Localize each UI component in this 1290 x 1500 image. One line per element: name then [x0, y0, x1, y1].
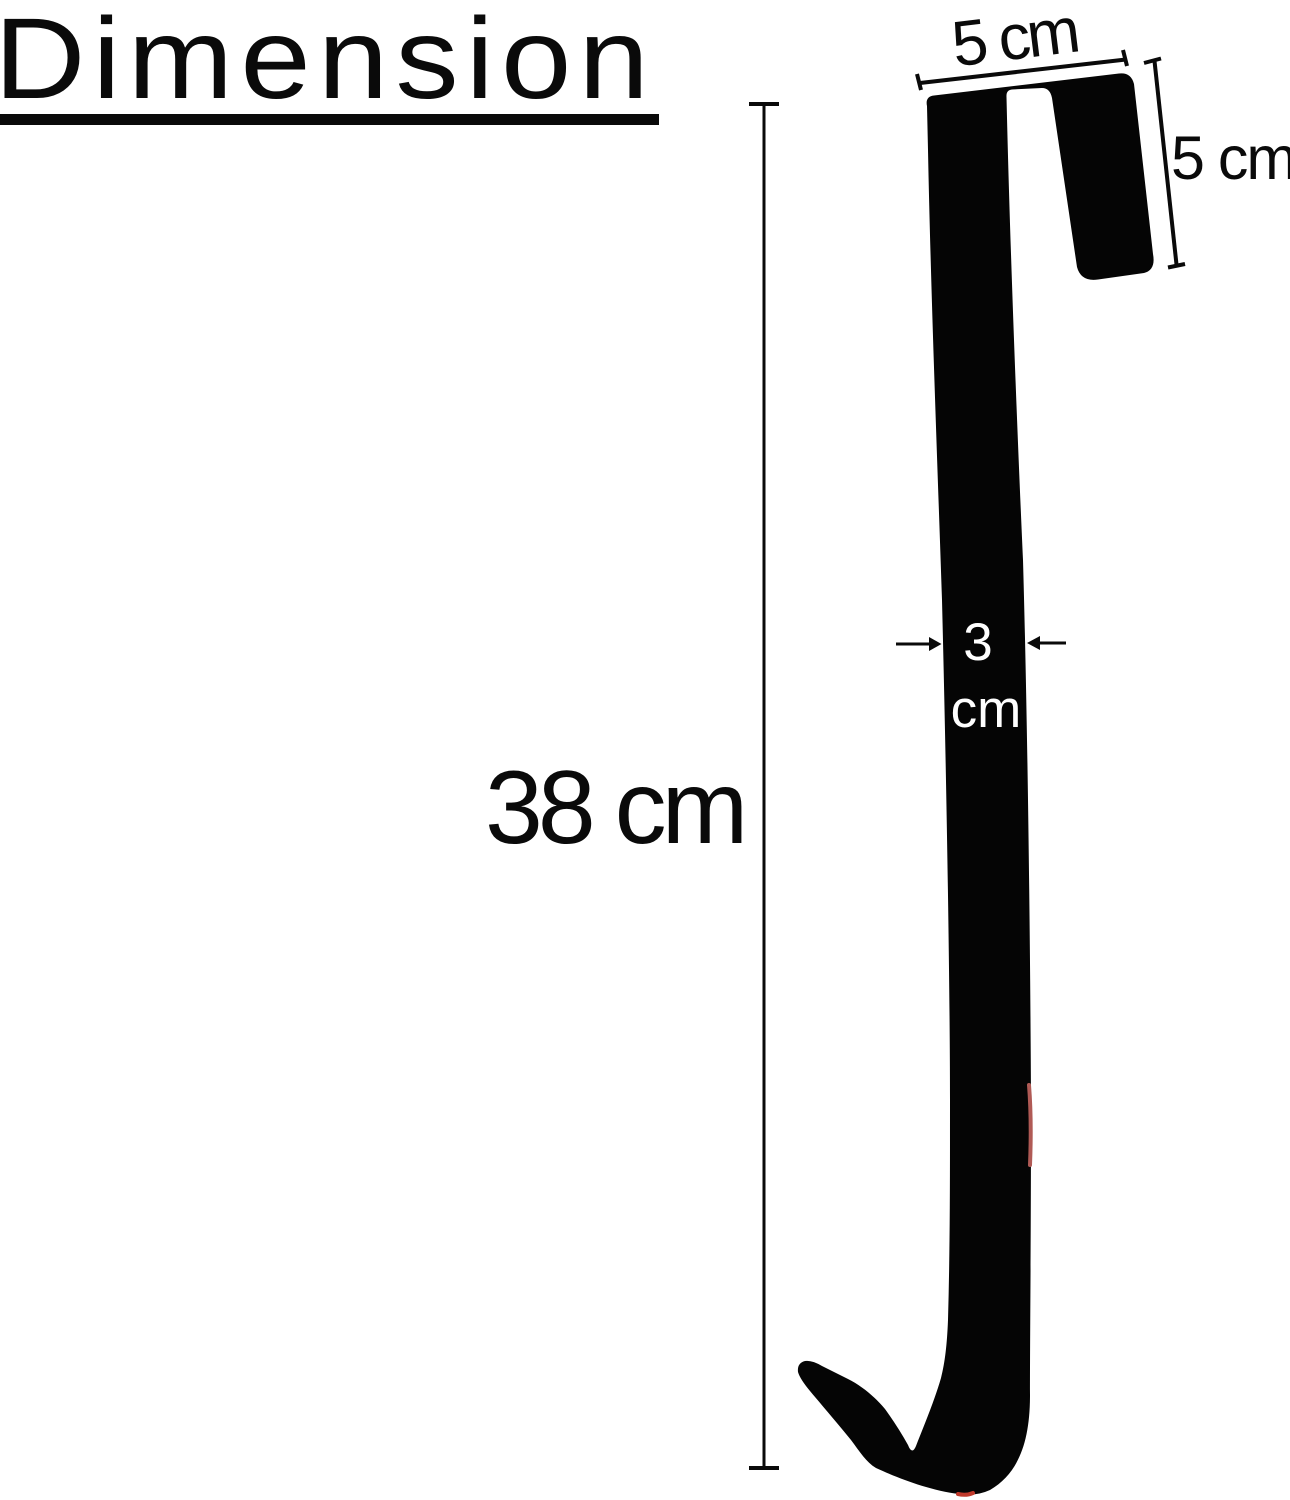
svg-text:cm: cm [951, 680, 1022, 739]
svg-text:5 cm: 5 cm [1171, 124, 1290, 192]
svg-text:38 cm: 38 cm [485, 750, 743, 866]
svg-text:Dimension: Dimension [0, 0, 656, 123]
svg-text:3: 3 [963, 613, 992, 672]
